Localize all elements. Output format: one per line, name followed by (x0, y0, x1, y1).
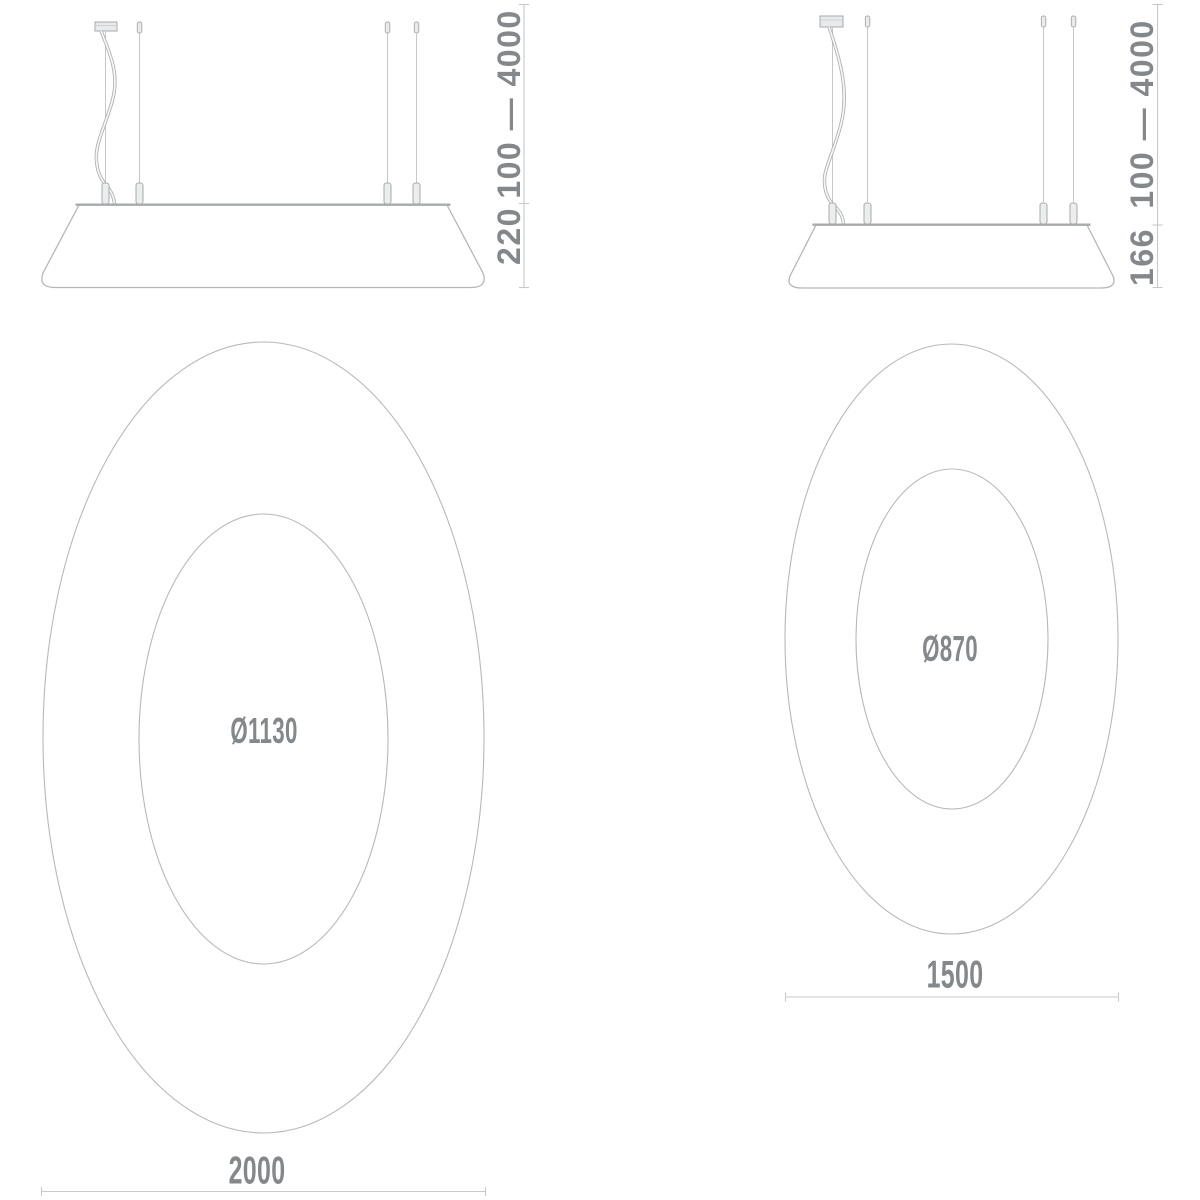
small-shade (789, 225, 1114, 288)
large-rod-cap (385, 22, 390, 33)
small-power-cord-highlight (824, 27, 844, 224)
small-rod-cap (1041, 16, 1046, 27)
small-rod-cap (865, 16, 870, 27)
dimension-drawing (0, 0, 1200, 1200)
large-canopy (95, 22, 117, 31)
small-cable-gripper (1040, 203, 1047, 224)
large-cable-gripper (136, 183, 143, 204)
small-side-view (789, 16, 1114, 288)
small-suspension-range-label: 100 — 4000 (1126, 19, 1158, 208)
small-outer-diameter-label: 1500 (927, 956, 984, 995)
large-rod-cap (414, 22, 419, 33)
small-cable-gripper (829, 203, 836, 224)
large-shade (42, 205, 484, 288)
small-cable-gripper (1070, 203, 1077, 224)
large-cable-gripper (384, 183, 391, 204)
spec-sheet: 100 — 4000 220 100 — 4000 166 Ø1130 Ø870… (0, 0, 1200, 1200)
large-outer-diameter-label: 2000 (229, 1152, 286, 1191)
large-side-view (42, 22, 484, 288)
large-inner-diameter-label: Ø1130 (230, 713, 297, 749)
small-rod-cap (1071, 16, 1076, 27)
small-cable-gripper (864, 203, 871, 224)
small-inner-diameter-label: Ø870 (922, 631, 978, 667)
large-rod-cap (137, 22, 142, 33)
large-cable-gripper (102, 183, 109, 204)
large-cable-gripper (413, 183, 420, 204)
large-shade-height-label: 220 (493, 207, 525, 265)
large-suspension-range-label: 100 — 4000 (493, 9, 525, 198)
small-shade-height-label: 166 (1126, 228, 1158, 286)
small-canopy (820, 16, 843, 27)
